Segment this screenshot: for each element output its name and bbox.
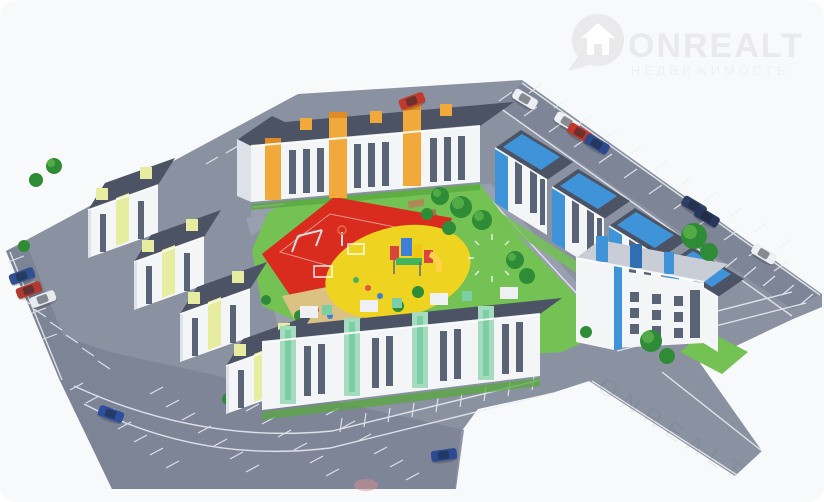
end-wall	[237, 139, 251, 202]
lime-tower	[162, 245, 175, 298]
brand-watermark: ONREALT НЕДВИЖИМОСТЬ	[568, 14, 804, 78]
edge-shade	[88, 209, 91, 258]
photo-card: ONREALT ONREALT НЕДВИЖИМОСТЬ	[0, 0, 824, 502]
stair-tower	[552, 187, 565, 250]
render-image: ONREALT ONREALT НЕДВИЖИМОСТЬ	[0, 0, 824, 502]
edge-shade	[134, 261, 137, 310]
edge-shade	[180, 313, 183, 362]
side-wall	[576, 258, 614, 350]
brand-name: ONREALT	[628, 27, 804, 65]
lime-tower	[116, 193, 129, 246]
brand-subtitle: НЕДВИЖИМОСТЬ	[631, 64, 790, 78]
screenshot: ONREALT ONREALT НЕДВИЖИМОСТЬ	[0, 0, 824, 502]
house-door	[594, 44, 602, 55]
faint-red-mark	[354, 479, 378, 491]
lime-tower	[208, 297, 221, 350]
edge-shade	[226, 365, 229, 414]
house-pin-icon	[568, 14, 624, 71]
stair-tower	[495, 148, 508, 211]
corner-accent	[614, 266, 622, 350]
